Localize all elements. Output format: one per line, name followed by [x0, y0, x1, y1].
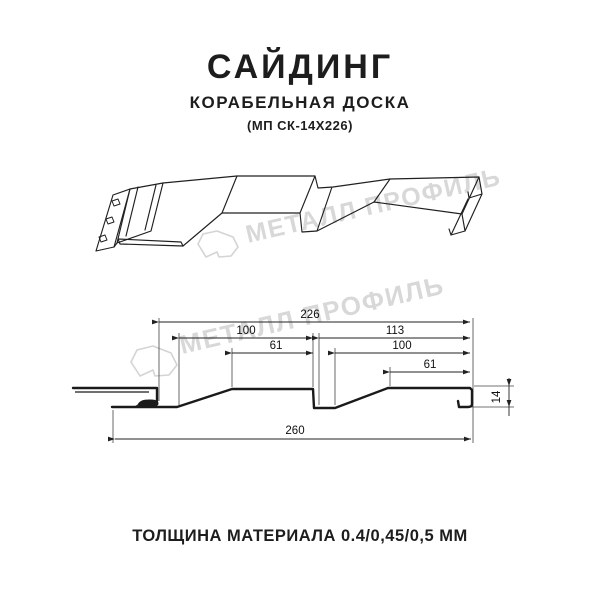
thickness-note: ТОЛЩИНА МАТЕРИАЛА 0.4/0,45/0,5 ММ [0, 527, 600, 546]
interlock-knuckle [138, 400, 158, 407]
page-subtitle: КОРАБЕЛЬНАЯ ДОСКА [0, 93, 600, 113]
dim-label-113: 113 [386, 325, 404, 337]
watermark-logo-icon [198, 231, 238, 257]
dim-label-100-right: 100 [392, 340, 411, 352]
dim-label-61-left: 61 [270, 340, 283, 352]
dim-label-226: 226 [300, 309, 319, 321]
watermark-section: МЕТАЛЛ ПРОФИЛЬ [131, 270, 447, 376]
product-code: (МП СК-14Х226) [0, 118, 600, 133]
dim-label-14: 14 [491, 390, 503, 403]
catalog-card: САЙДИНГ КОРАБЕЛЬНАЯ ДОСКА (МП СК-14Х226)… [0, 0, 600, 600]
dim-label-260: 260 [285, 425, 304, 437]
dim-label-61-right: 61 [424, 359, 437, 371]
watermark-logo-icon [131, 346, 177, 376]
page-title: САЙДИНГ [0, 50, 600, 86]
dim-label-100-left: 100 [236, 325, 255, 337]
title-block: САЙДИНГ КОРАБЕЛЬНАЯ ДОСКА (МП СК-14Х226) [0, 50, 600, 133]
